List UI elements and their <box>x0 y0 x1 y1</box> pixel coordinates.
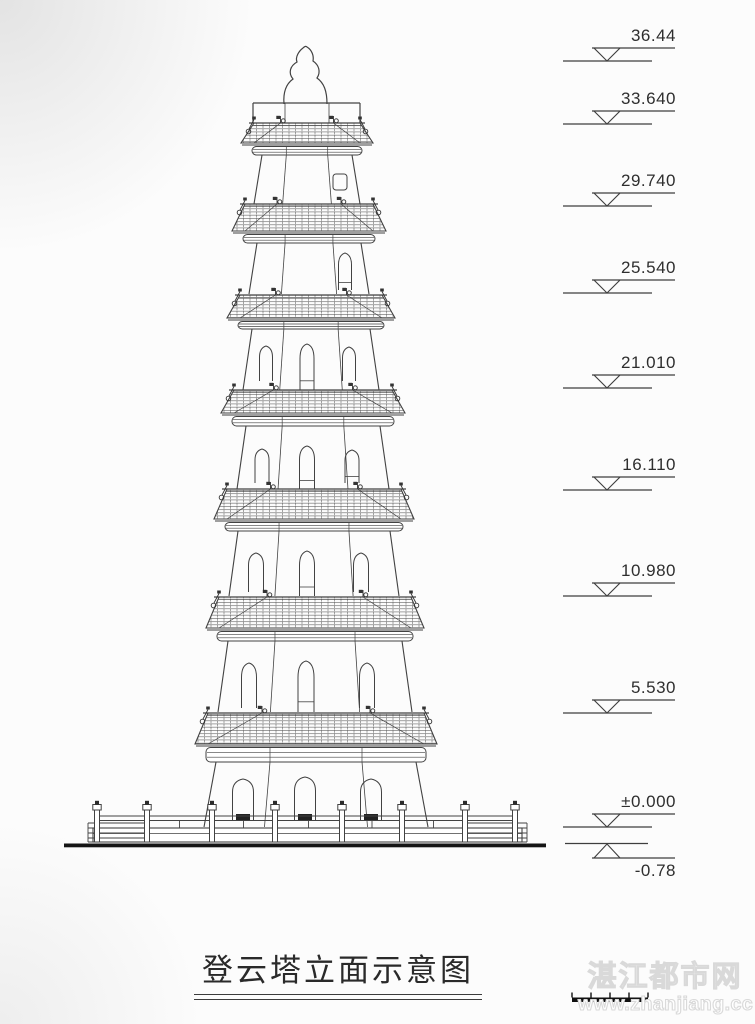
watermark: 湛江都市网 www.zhanjiang.cc <box>578 953 752 1016</box>
base-platform-balustrade <box>88 801 527 842</box>
top-parapet <box>253 103 360 123</box>
pagoda-drawing-host <box>0 0 755 1024</box>
drawing-canvas: 36.44 33.640 29.740 25.540 21.010 16.110… <box>0 0 755 1024</box>
story-2 <box>206 590 424 712</box>
pagoda-elevation-drawing <box>0 0 755 1024</box>
story-3 <box>214 482 414 596</box>
finial-gourd <box>284 46 327 104</box>
watermark-site-url: www.zhanjiang.cc <box>578 993 752 1016</box>
story-4 <box>221 383 405 489</box>
ground-line <box>64 844 546 848</box>
story-6 <box>232 197 386 294</box>
watermark-site-name: 湛江都市网 <box>578 953 752 995</box>
story-5 <box>227 288 395 390</box>
story-7 <box>241 116 373 204</box>
